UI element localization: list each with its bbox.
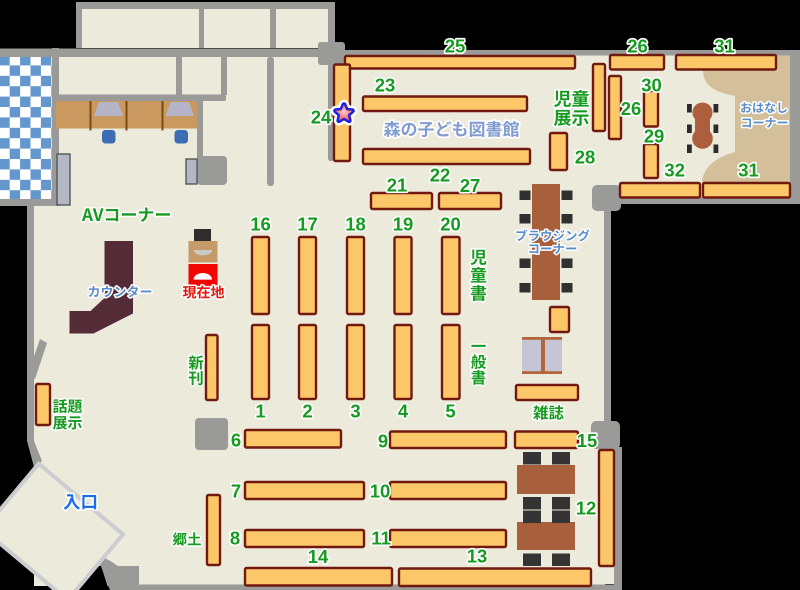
svg-text:12: 12: [576, 498, 597, 519]
svg-text:30: 30: [641, 75, 662, 96]
svg-text:9: 9: [378, 431, 388, 452]
svg-text:29: 29: [644, 126, 665, 147]
svg-text:15: 15: [577, 430, 598, 451]
svg-text:23: 23: [375, 75, 396, 96]
svg-text:24: 24: [311, 107, 332, 128]
svg-text:21: 21: [387, 175, 408, 196]
svg-text:7: 7: [231, 481, 241, 502]
svg-text:10: 10: [370, 481, 391, 502]
svg-text:32: 32: [664, 160, 685, 181]
svg-text:3: 3: [350, 401, 360, 422]
svg-text:8: 8: [230, 528, 240, 549]
svg-text:26: 26: [621, 98, 642, 119]
svg-text:13: 13: [467, 546, 488, 567]
svg-text:31: 31: [714, 36, 735, 57]
svg-text:17: 17: [297, 214, 318, 235]
svg-text:27: 27: [460, 175, 481, 196]
svg-text:25: 25: [445, 36, 466, 57]
svg-text:26: 26: [627, 36, 648, 57]
svg-text:16: 16: [250, 214, 271, 235]
svg-text:28: 28: [575, 147, 596, 168]
svg-text:22: 22: [430, 165, 451, 186]
svg-text:6: 6: [231, 430, 241, 451]
svg-text:18: 18: [345, 214, 366, 235]
svg-text:4: 4: [398, 401, 409, 422]
svg-text:2: 2: [302, 401, 312, 422]
svg-text:1: 1: [255, 401, 265, 422]
svg-text:19: 19: [393, 214, 414, 235]
svg-text:5: 5: [445, 401, 455, 422]
svg-text:14: 14: [308, 546, 329, 567]
svg-text:31: 31: [738, 160, 759, 181]
svg-text:11: 11: [371, 528, 391, 549]
svg-text:20: 20: [440, 214, 461, 235]
